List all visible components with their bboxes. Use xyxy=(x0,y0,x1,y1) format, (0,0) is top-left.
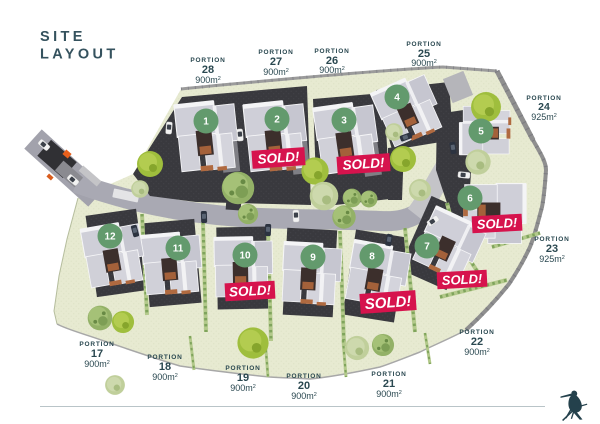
svg-text:925m2: 925m2 xyxy=(539,254,565,264)
svg-text:4: 4 xyxy=(394,93,400,104)
svg-text:PORTION: PORTION xyxy=(534,236,569,243)
svg-text:SOLD!: SOLD! xyxy=(342,155,385,173)
svg-text:3: 3 xyxy=(341,116,347,127)
svg-text:PORTION: PORTION xyxy=(147,354,182,361)
svg-text:8: 8 xyxy=(369,252,375,263)
svg-text:PORTION: PORTION xyxy=(190,57,225,64)
svg-text:SOLD!: SOLD! xyxy=(229,282,272,299)
svg-text:SOLD!: SOLD! xyxy=(476,215,518,232)
svg-text:10: 10 xyxy=(239,251,251,262)
svg-text:PORTION: PORTION xyxy=(371,371,406,378)
svg-text:SOLD!: SOLD! xyxy=(364,293,412,313)
svg-text:7: 7 xyxy=(424,242,430,253)
svg-text:5: 5 xyxy=(478,127,484,138)
svg-text:2: 2 xyxy=(274,115,280,126)
svg-text:900m2: 900m2 xyxy=(411,58,437,68)
svg-text:11: 11 xyxy=(173,244,184,255)
svg-text:PORTION: PORTION xyxy=(258,49,293,56)
svg-text:900m2: 900m2 xyxy=(376,389,402,399)
svg-text:LAYOUT: LAYOUT xyxy=(40,47,119,63)
svg-text:900m2: 900m2 xyxy=(230,383,256,393)
svg-text:12: 12 xyxy=(104,232,116,243)
svg-text:925m2: 925m2 xyxy=(531,112,557,122)
svg-text:900m2: 900m2 xyxy=(152,372,178,382)
svg-text:PORTION: PORTION xyxy=(406,41,441,48)
svg-text:6: 6 xyxy=(467,194,473,205)
svg-text:PORTION: PORTION xyxy=(286,373,321,380)
svg-text:SOLD!: SOLD! xyxy=(257,149,300,167)
svg-text:SITE: SITE xyxy=(40,29,86,45)
svg-text:900m2: 900m2 xyxy=(84,359,110,369)
svg-text:900m2: 900m2 xyxy=(319,65,345,75)
svg-text:PORTION: PORTION xyxy=(314,48,349,55)
svg-text:1: 1 xyxy=(203,117,209,128)
svg-text:PORTION: PORTION xyxy=(459,329,494,336)
svg-text:SOLD!: SOLD! xyxy=(441,271,483,288)
svg-text:PORTION: PORTION xyxy=(225,365,260,372)
svg-text:PORTION: PORTION xyxy=(79,341,114,348)
svg-text:900m2: 900m2 xyxy=(195,75,221,85)
svg-text:900m2: 900m2 xyxy=(291,391,317,401)
svg-text:9: 9 xyxy=(310,253,316,264)
svg-text:900m2: 900m2 xyxy=(263,67,289,77)
svg-text:900m2: 900m2 xyxy=(464,347,490,357)
